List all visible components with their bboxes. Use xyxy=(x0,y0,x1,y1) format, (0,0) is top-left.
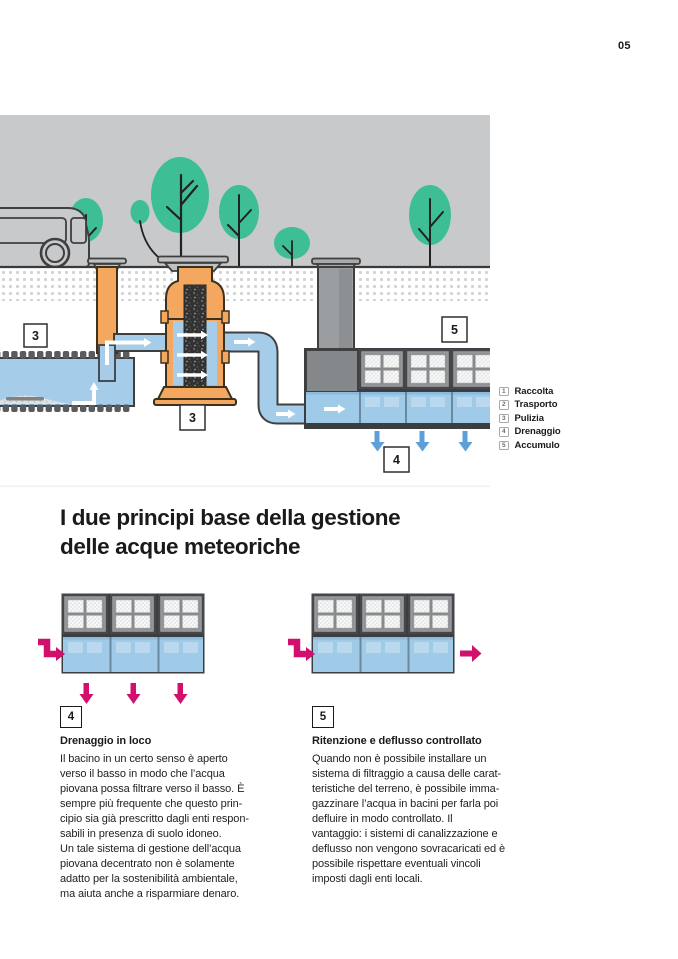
label-drain: 4 xyxy=(393,453,400,467)
label-storage: 5 xyxy=(451,323,458,337)
gravel-layer xyxy=(0,268,490,301)
figure-bottom-edge xyxy=(0,486,490,487)
section-title: Ritenzione e deflusso controllato xyxy=(312,735,532,747)
section-title: Drenaggio in loco xyxy=(60,735,280,747)
stormwater-system-illustration: 3 3 5 4 xyxy=(0,115,490,487)
legend-item-raccolta: 1 Raccolta xyxy=(499,386,561,397)
page-title: I due principi base della gestione delle… xyxy=(60,504,490,561)
section-badge-5: 5 xyxy=(312,706,334,728)
controlled-outflow-arrow xyxy=(460,645,482,662)
legend-num-5: 5 xyxy=(499,441,509,451)
legend-num-1: 1 xyxy=(499,387,509,397)
legend-item-pulizia: 3 Pulizia xyxy=(499,413,561,424)
legend-item-trasporto: 2 Trasporto xyxy=(499,400,561,411)
legend-item-drenaggio: 4 Drenaggio xyxy=(499,427,561,438)
infiltration-arrows xyxy=(80,683,188,704)
section-ritenzione: Ritenzione e deflusso controllato Quando… xyxy=(312,735,532,887)
diagram-retention xyxy=(283,586,488,708)
inflow-arrow-right-diagram xyxy=(288,642,315,661)
section-body: Quando non è possibile installare un sis… xyxy=(312,752,532,887)
document-page: 05 xyxy=(0,0,678,959)
crate-grid-left xyxy=(62,594,205,674)
section-badge-4: 4 xyxy=(60,706,82,728)
label-filter: 3 xyxy=(189,411,196,425)
legend-num-2: 2 xyxy=(499,400,509,410)
legend-num-3: 3 xyxy=(499,414,509,424)
legend-item-accumulo: 5 Accumulo xyxy=(499,440,561,451)
transport-pipe xyxy=(224,338,312,419)
legend-num-4: 4 xyxy=(499,427,509,437)
section-drenaggio-in-loco: Drenaggio in loco Il bacino in un certo … xyxy=(60,735,280,902)
bus xyxy=(0,208,89,267)
page-number: 05 xyxy=(618,40,631,52)
crate-grid-right xyxy=(312,594,455,674)
legend: 1 Raccolta 2 Trasporto 3 Pulizia 4 Drena… xyxy=(499,386,561,451)
diagram-drainage xyxy=(33,586,215,708)
section-body: Il bacino in un certo senso è aperto ver… xyxy=(60,752,280,902)
inflow-arrow-left-diagram xyxy=(38,642,65,661)
label-basin: 3 xyxy=(32,329,39,343)
